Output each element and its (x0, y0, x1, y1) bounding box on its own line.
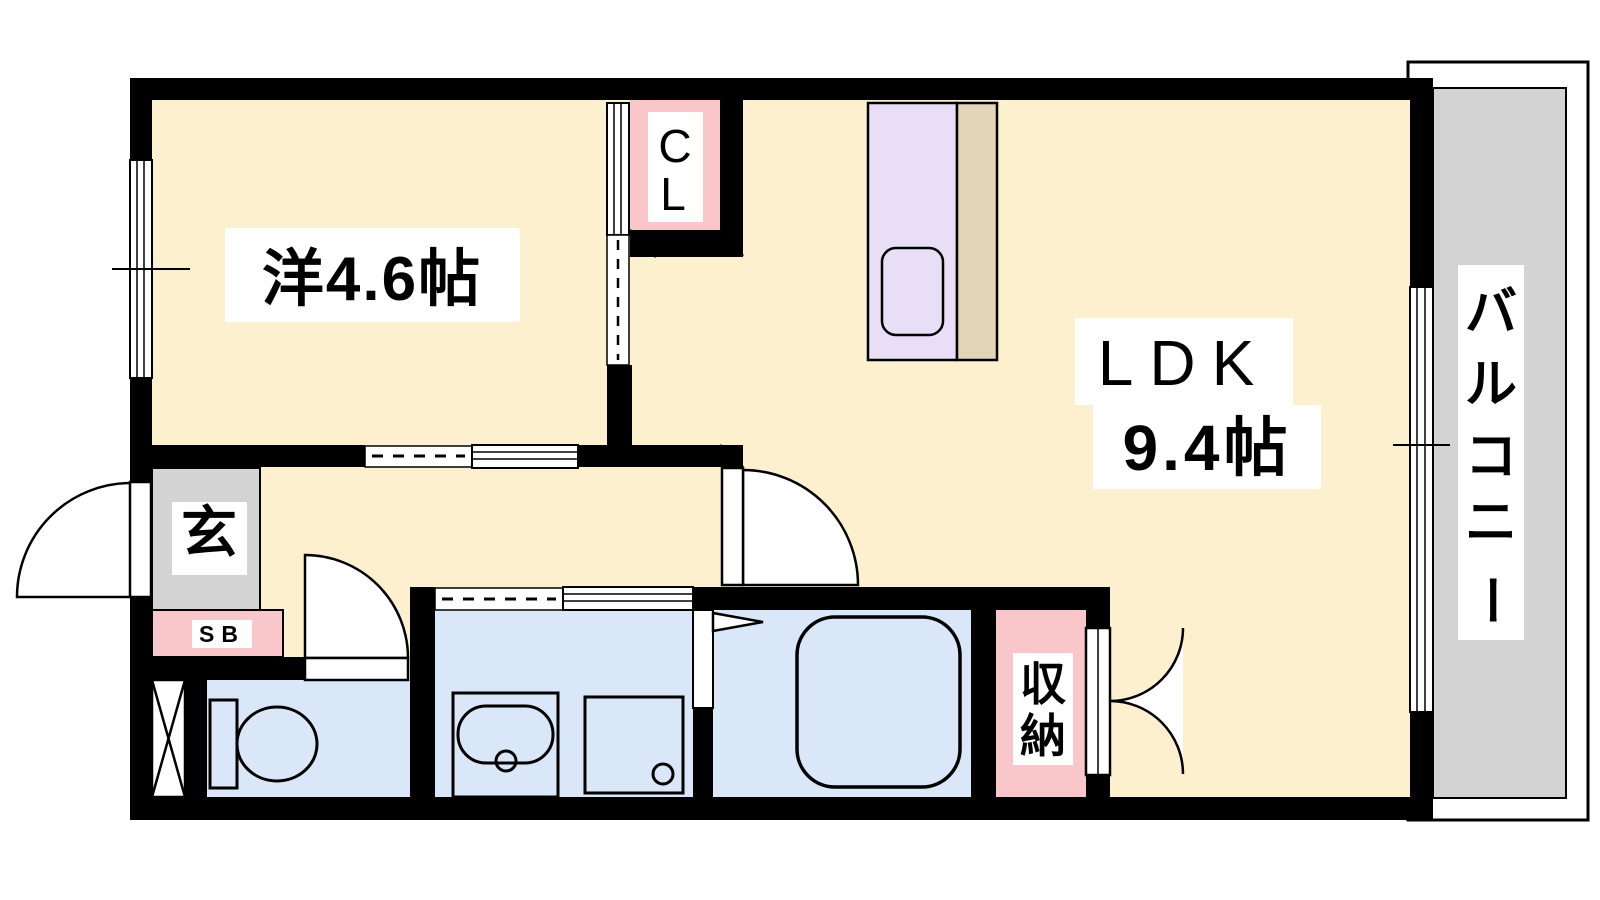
balcony-label-char3: コ (1465, 428, 1517, 486)
balcony-label-char4: ニ (1465, 494, 1517, 552)
wall-washroom-bath (693, 708, 713, 797)
wall-westroom-hall-right (578, 445, 743, 467)
entrance-door-leaf (130, 482, 151, 597)
storage-label-char1: 収 (1020, 658, 1066, 710)
western-room-label: 洋4.6帖 (262, 245, 482, 314)
wall-top (130, 78, 1433, 100)
wall-right-upper (1410, 78, 1433, 287)
closet-sliding-door (607, 103, 629, 235)
balcony-label-char5: ー (1461, 574, 1519, 626)
kitchen-counter-edge (957, 103, 997, 360)
wall-partition-lower (607, 365, 632, 445)
ldk-label-line2: 9.4帖 (1123, 412, 1292, 484)
entrance-door-swing (17, 483, 131, 597)
closet-label-l: L (660, 168, 686, 220)
floor-plan-drawing: 洋4.6帖 LDK 9.4帖 C L 玄 SB 収 納 バ ル コ ニ ー (0, 0, 1600, 900)
pipe-shaft (152, 680, 185, 797)
wall-washroom-left (410, 587, 435, 797)
balcony-label-char2: ル (1465, 356, 1517, 414)
ldk-label-line1: LDK (1098, 327, 1271, 399)
wall-left-lower (130, 597, 152, 820)
shoebox-label: SB (199, 621, 245, 647)
wall-right-lower (1410, 712, 1433, 820)
washroom-slider-door (563, 587, 693, 610)
closet-label-c: C (658, 120, 691, 172)
floor-plan-canvas: 洋4.6帖 LDK 9.4帖 C L 玄 SB 収 納 バ ル コ ニ ー (0, 0, 1600, 900)
westroom-slider-door (472, 445, 578, 468)
balcony-label-char1: バ (1465, 284, 1517, 342)
wall-bath-storage (971, 608, 996, 797)
wall-westroom-hall-left (130, 445, 365, 467)
wall-bath-storage-top (693, 587, 1110, 610)
storage-label-char2: 納 (1020, 710, 1066, 762)
wall-bottom (130, 797, 1410, 820)
wall-storage-stub-bottom (1086, 775, 1110, 797)
wall-shaft-toilet (185, 680, 207, 797)
wall-toilet-top (130, 657, 305, 680)
bathroom-door-leaf (693, 610, 713, 708)
entrance-label: 玄 (181, 501, 237, 564)
toilet-door-leaf (305, 658, 408, 680)
kitchen-sink (882, 248, 943, 335)
wall-storage-stub-top (1086, 608, 1110, 628)
window-ldk-balcony (1410, 287, 1433, 712)
ldk-door-leaf (722, 468, 743, 585)
bathroom-floor (713, 610, 971, 797)
washroom-slider-track (435, 588, 563, 610)
